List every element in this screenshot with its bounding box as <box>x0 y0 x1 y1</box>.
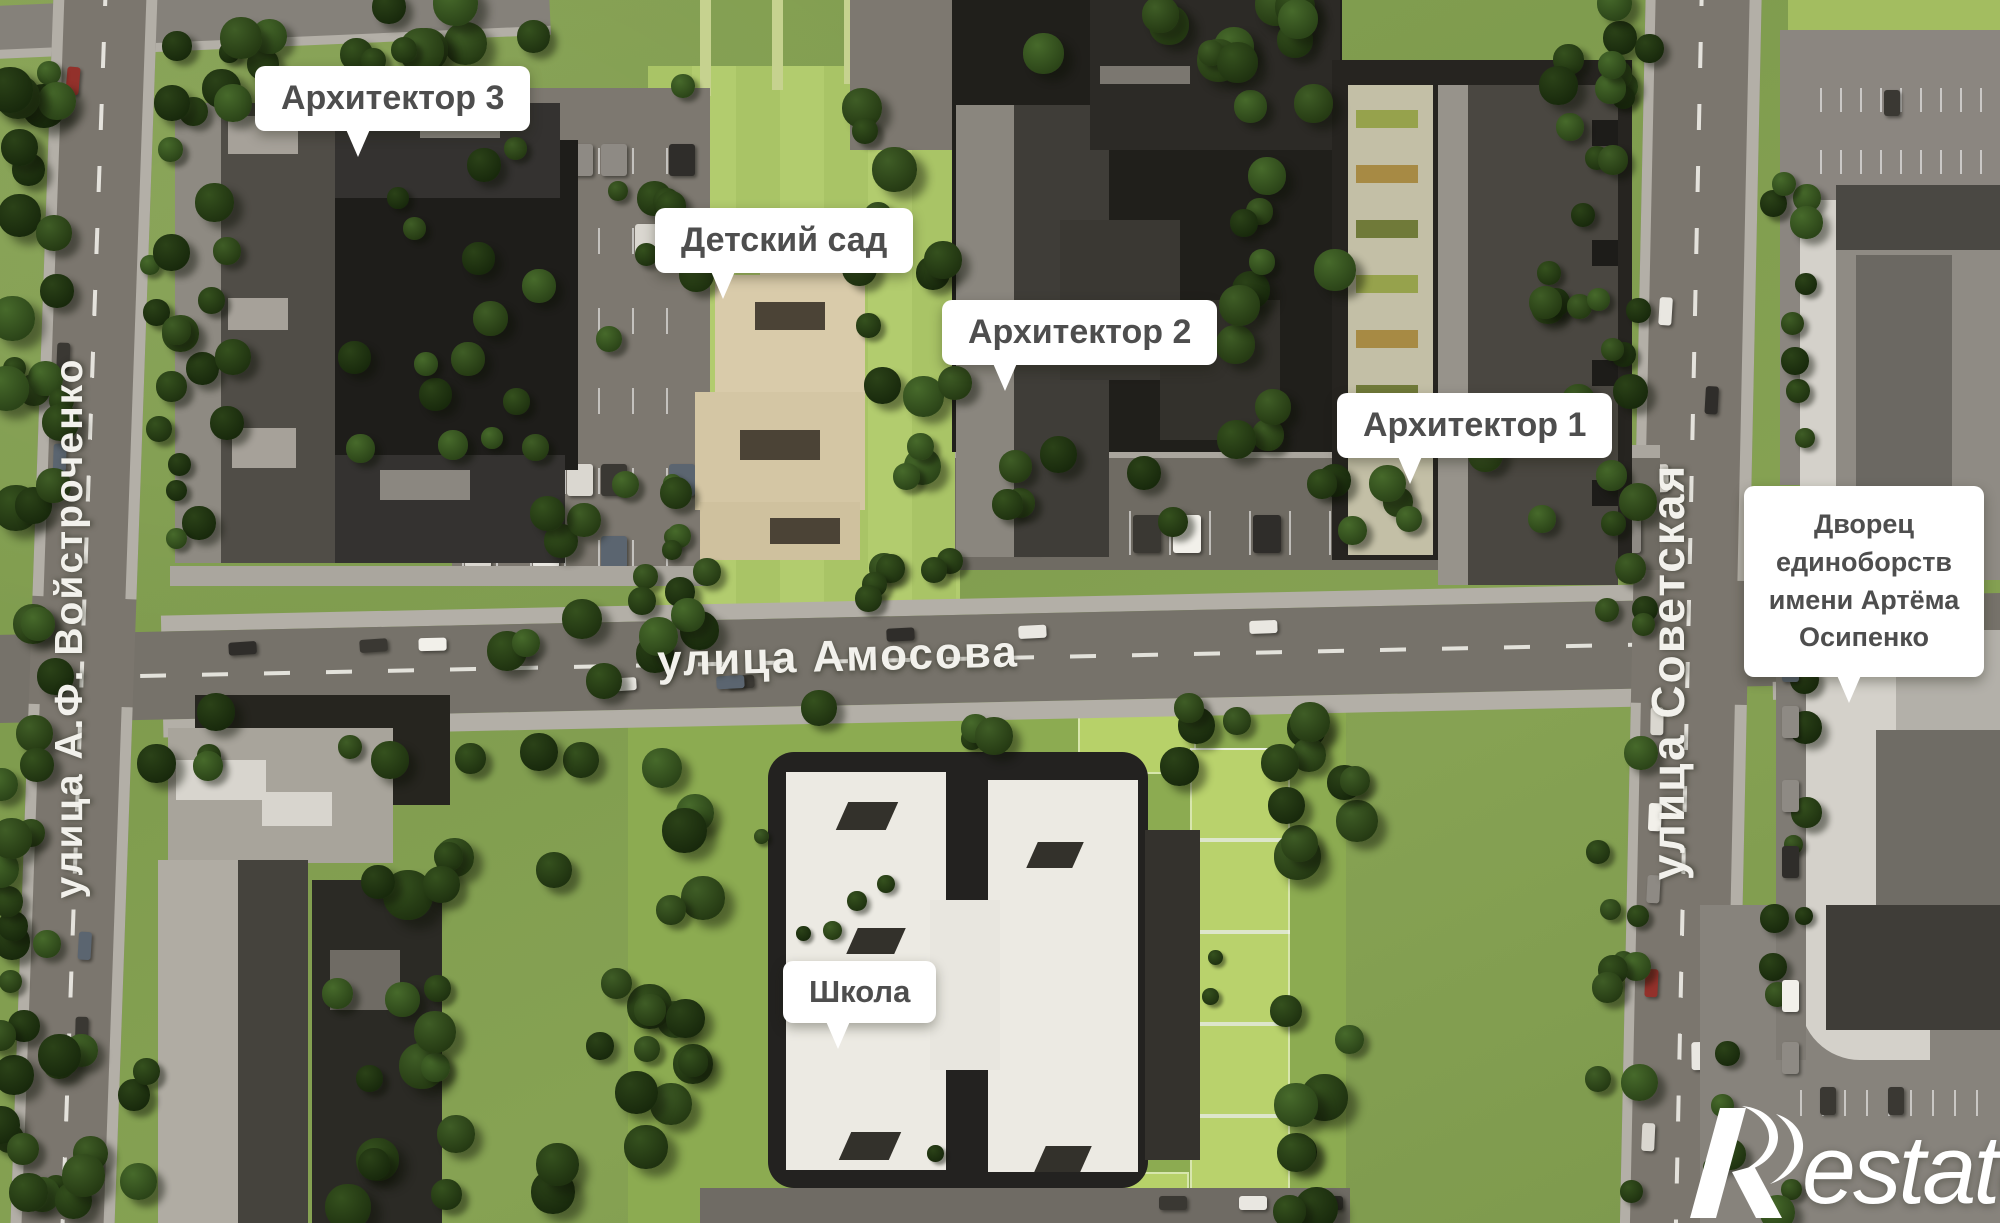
building-school-connector <box>930 900 1000 1070</box>
restate-logo-mark <box>1684 1096 1818 1220</box>
parking-stall-line <box>1920 150 1922 174</box>
tree <box>0 768 18 801</box>
tree <box>0 850 19 888</box>
parking-stall-line <box>1980 88 1982 112</box>
restate-logo: estate <box>1684 1096 2000 1220</box>
roof-detail <box>1592 480 1618 506</box>
tree <box>563 742 599 778</box>
parking-stall-line <box>632 308 634 334</box>
planter <box>1356 110 1418 128</box>
parking-stall-line <box>1900 88 1902 112</box>
building-architect2-block <box>850 0 960 150</box>
building-facade <box>175 103 221 563</box>
parking-stall-line <box>598 308 600 334</box>
roof-detail <box>1592 360 1618 386</box>
tree <box>0 485 39 531</box>
tree <box>1 129 38 166</box>
parking-stall-line <box>666 468 668 494</box>
tree <box>435 838 474 877</box>
car <box>359 638 388 653</box>
tree <box>520 733 558 771</box>
label-palace: Дворец единоборств имени Артёма Осипенко <box>1744 486 1984 677</box>
parking-stall-line <box>1940 88 1942 112</box>
parking-stall-line <box>1840 150 1842 174</box>
parking-stall-line <box>1249 511 1251 555</box>
parking-stall-line <box>1880 88 1882 112</box>
car <box>669 144 695 176</box>
parking-stall-line <box>598 468 600 494</box>
car <box>1782 780 1799 812</box>
parking-stall-line <box>598 228 600 254</box>
sidewalk <box>102 707 132 1223</box>
street-label-sovetskaya: улица Советская <box>1641 464 1695 881</box>
building-kindergarten <box>715 275 865 400</box>
planter <box>1356 275 1418 293</box>
roof-shadow <box>770 518 840 544</box>
tree <box>586 1032 614 1060</box>
street-label-amosova: улица Амосова <box>657 627 1020 686</box>
parking-stall-line <box>1820 88 1822 112</box>
car <box>1782 706 1799 738</box>
tree <box>0 296 35 341</box>
car <box>1884 90 1900 116</box>
tree <box>437 1115 475 1153</box>
parking-stall-line <box>632 540 634 566</box>
parking-stall-line <box>1840 88 1842 112</box>
car <box>1658 297 1673 326</box>
parking-stall-line <box>1880 150 1882 174</box>
car <box>601 464 627 496</box>
building-palace-south <box>1876 730 2000 920</box>
label-kindergarten: Детский сад <box>655 208 913 273</box>
building-palace-north <box>1836 185 2000 253</box>
parking-stall-line <box>598 148 600 174</box>
sidewalk <box>1619 703 1641 1223</box>
tree <box>536 1143 579 1186</box>
tree <box>0 1020 16 1051</box>
tree <box>536 852 572 888</box>
parking-stall-line <box>666 308 668 334</box>
parking-stall-line <box>632 148 634 174</box>
sidewalk <box>9 704 39 1223</box>
tree <box>455 743 486 774</box>
driveway <box>700 1188 1350 1223</box>
parking-stall-line <box>666 540 668 566</box>
car <box>1173 515 1201 553</box>
tree <box>1597 0 1632 21</box>
car <box>608 677 637 692</box>
roof-detail <box>1856 255 1952 505</box>
sport-field <box>1190 748 1290 1210</box>
label-school: Школа <box>783 961 936 1023</box>
tree <box>133 1058 160 1085</box>
parking-stall-line <box>632 228 634 254</box>
tree <box>0 366 29 411</box>
car <box>1239 1196 1267 1210</box>
planter <box>1356 165 1418 183</box>
walkway <box>170 566 710 586</box>
tree <box>434 842 463 871</box>
roof-shadow <box>755 302 825 330</box>
car <box>1644 969 1658 998</box>
car <box>601 144 627 176</box>
building-school-annex <box>1145 830 1200 1160</box>
architect1-courtyard <box>1348 85 1433 555</box>
label-architect1: Архитектор 1 <box>1337 393 1612 458</box>
tree <box>1585 1066 1611 1092</box>
parking-stall-line <box>1329 511 1331 555</box>
parking-stall-line <box>632 388 634 414</box>
parking-stall-line <box>1169 511 1171 555</box>
tree <box>1586 840 1610 864</box>
car <box>1133 515 1161 553</box>
building-existing <box>312 880 442 1223</box>
car <box>77 931 92 960</box>
tree <box>12 153 45 186</box>
car <box>669 464 695 496</box>
car <box>1253 515 1281 553</box>
tree <box>0 67 33 113</box>
planter <box>1356 330 1418 348</box>
roof-detail <box>228 298 288 330</box>
roof-detail <box>380 470 470 500</box>
roof-detail <box>330 950 400 1010</box>
lawn-path <box>772 0 783 90</box>
car <box>75 1017 89 1045</box>
building-existing <box>238 860 308 1223</box>
building-school-east-wing <box>988 780 1138 1172</box>
car <box>1704 386 1719 415</box>
tree <box>118 1079 150 1111</box>
restate-logo-text: estate <box>1802 1121 2000 1220</box>
parking-stall-line <box>1209 511 1211 555</box>
roof-detail <box>232 428 296 468</box>
car <box>1018 625 1047 639</box>
lawn-path <box>700 0 711 96</box>
tree <box>0 75 40 119</box>
masterplan-scene: улица А.Ф. Войстроченко улица Амосова ул… <box>0 0 2000 1223</box>
roof-shadow <box>740 430 820 460</box>
parking-stall-line <box>1860 88 1862 112</box>
car <box>1782 980 1799 1012</box>
car <box>65 66 80 95</box>
car <box>1249 620 1277 634</box>
tree <box>531 1170 575 1214</box>
label-architect3: Архитектор 3 <box>255 66 530 131</box>
roof-detail <box>1592 120 1618 146</box>
car <box>601 536 627 568</box>
car <box>1159 1196 1187 1210</box>
label-architect2: Архитектор 2 <box>942 300 1217 365</box>
tree <box>120 1163 157 1200</box>
tree <box>1598 955 1628 985</box>
sidewalk <box>125 0 158 599</box>
car <box>228 641 257 656</box>
parking-stall-line <box>666 148 668 174</box>
parking-stall-line <box>1860 150 1862 174</box>
parking-stall-line <box>598 540 600 566</box>
tree <box>1603 21 1637 55</box>
tree <box>0 194 41 237</box>
parking-stall-line <box>1920 88 1922 112</box>
tree <box>143 299 170 326</box>
roof-detail <box>1592 240 1618 266</box>
parking-stall-line <box>1960 88 1962 112</box>
tree <box>1592 972 1623 1003</box>
parking-stall-line <box>1900 150 1902 174</box>
parking-stall-line <box>1960 150 1962 174</box>
roof-detail <box>262 792 332 826</box>
building-facade <box>1438 85 1468 585</box>
tree <box>1600 899 1621 920</box>
tree <box>146 416 172 442</box>
parking-stall-line <box>1289 511 1291 555</box>
car <box>418 638 446 652</box>
parking-stall-line <box>1980 150 1982 174</box>
tree <box>0 886 23 917</box>
parking-stall-line <box>598 388 600 414</box>
tree <box>3 357 26 380</box>
building-palace-low <box>1826 905 2000 1030</box>
building-existing <box>158 860 238 1223</box>
car <box>1782 846 1799 878</box>
car <box>1782 1042 1799 1074</box>
parking-stall-line <box>1820 150 1822 174</box>
roof-detail <box>176 760 266 800</box>
parking-stall-line <box>632 468 634 494</box>
street-label-voystrochenko: улица А.Ф. Войстроченко <box>48 357 92 898</box>
planter <box>1356 220 1418 238</box>
roof-detail <box>1100 66 1190 84</box>
parking-stall-line <box>1129 511 1131 555</box>
parking-stall-line <box>1940 150 1942 174</box>
car <box>1307 1196 1335 1210</box>
parking-stall-line <box>666 388 668 414</box>
car <box>1641 1123 1655 1152</box>
